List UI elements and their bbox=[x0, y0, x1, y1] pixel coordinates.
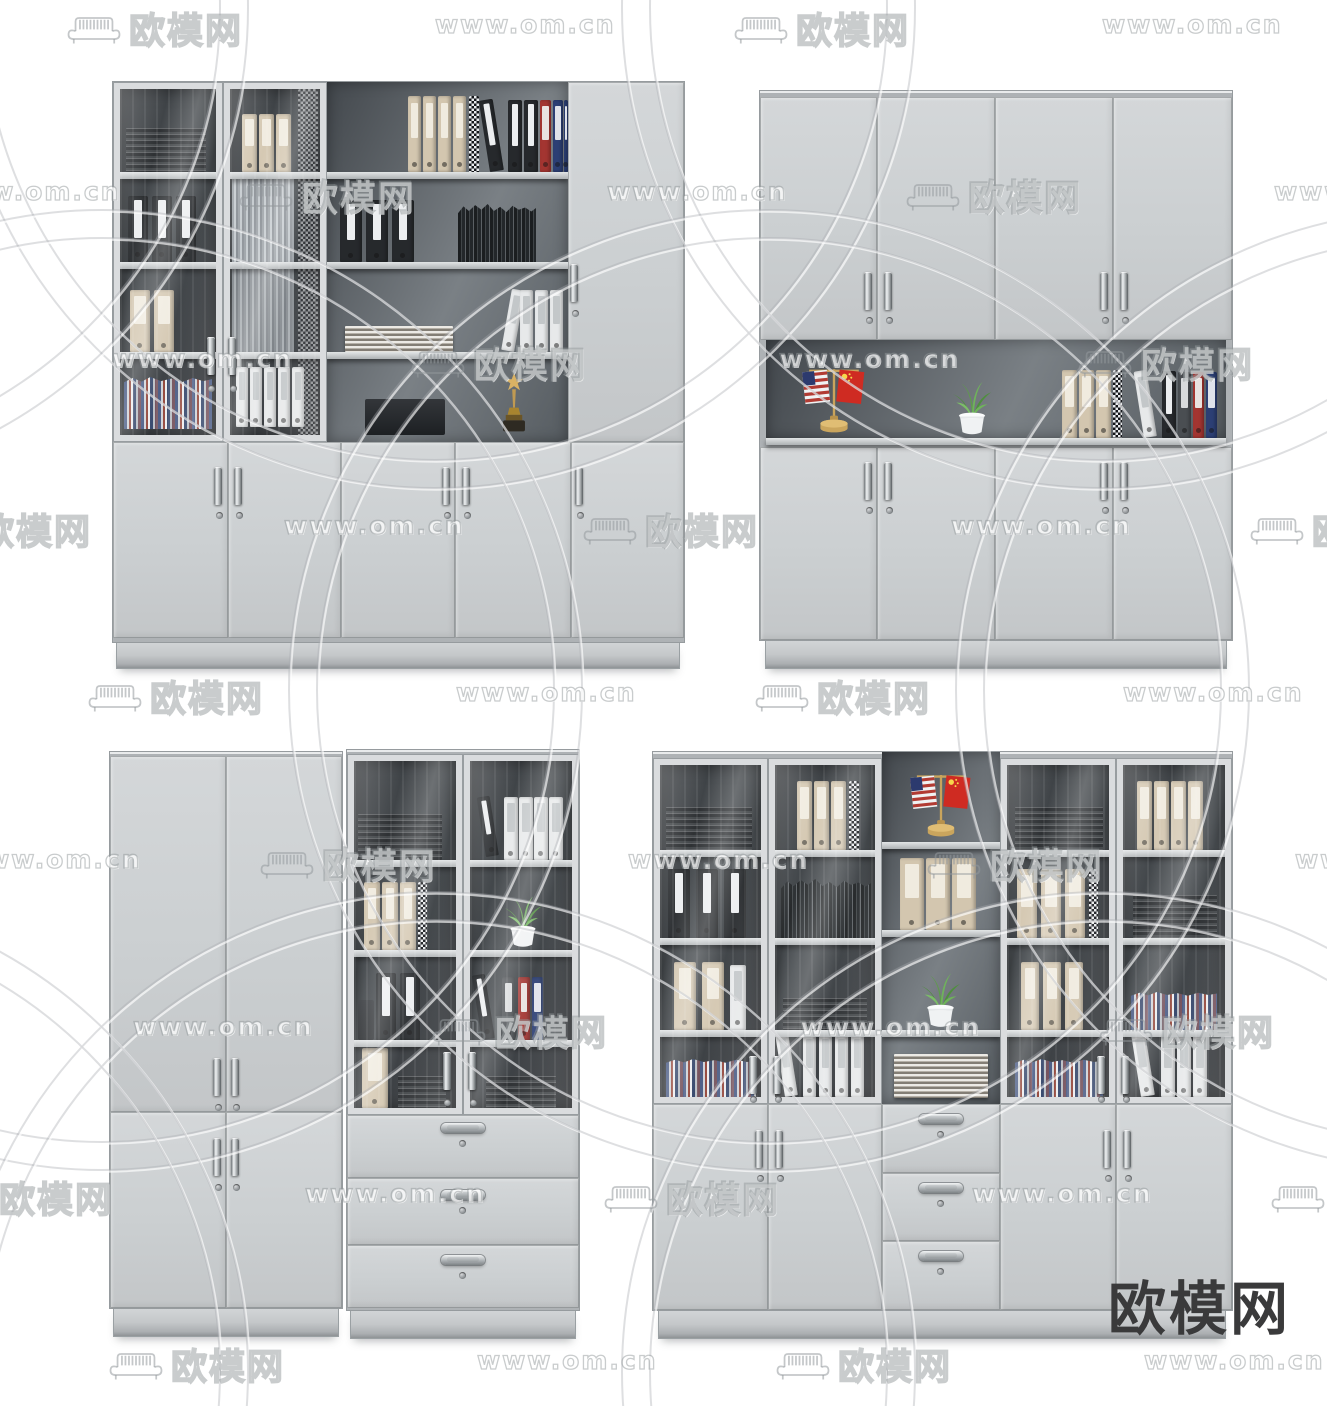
potted-plant bbox=[498, 891, 548, 950]
binder bbox=[438, 96, 451, 172]
site-logo: 欧模网 bbox=[1108, 1262, 1291, 1346]
door-handle bbox=[468, 1052, 476, 1090]
keyhole bbox=[1122, 507, 1129, 514]
glass-pane bbox=[1123, 765, 1225, 1097]
glass-pane bbox=[1007, 765, 1109, 1097]
bd bbox=[120, 262, 216, 269]
drawer-handle bbox=[919, 1114, 963, 1124]
binder bbox=[423, 96, 436, 172]
binder bbox=[400, 973, 420, 1040]
binder bbox=[1154, 781, 1169, 850]
watermark-brand-text: 欧模网 bbox=[1312, 503, 1327, 555]
bd bbox=[775, 850, 875, 857]
door-handle bbox=[1100, 272, 1108, 310]
magazine-stack bbox=[894, 1054, 988, 1098]
door-handle bbox=[864, 272, 872, 310]
plinth bbox=[114, 1308, 338, 1336]
door-handle bbox=[775, 1130, 783, 1168]
magazine-stack bbox=[126, 128, 206, 172]
watermark-url-text: www.om.cn bbox=[1144, 1346, 1325, 1375]
door-handle bbox=[213, 1138, 221, 1176]
door-handle bbox=[443, 1052, 451, 1090]
keyhole bbox=[757, 1175, 764, 1182]
box-file bbox=[952, 858, 976, 930]
cabinet-door bbox=[995, 97, 1113, 340]
binder bbox=[851, 1033, 864, 1097]
use bbox=[953, 382, 991, 434]
binder bbox=[549, 797, 563, 860]
watermark-url-text: www.om.cn bbox=[1123, 678, 1304, 707]
binder bbox=[1193, 1033, 1207, 1097]
cabinet-door bbox=[341, 442, 455, 638]
binder bbox=[1177, 1033, 1191, 1097]
door-handle bbox=[1097, 1056, 1105, 1094]
watermark-brand-text: 欧模网 bbox=[0, 503, 92, 555]
keyhole bbox=[230, 385, 237, 392]
drawer-handle bbox=[919, 1251, 963, 1261]
binder bbox=[176, 196, 196, 262]
patterned-book bbox=[469, 96, 479, 172]
watermark-brand: 欧模网 bbox=[753, 670, 931, 722]
watermark-brand: 欧模网 bbox=[0, 1171, 113, 1223]
binder bbox=[532, 977, 543, 1040]
watermark-url: www.om.cn bbox=[1295, 845, 1327, 874]
use bbox=[503, 373, 525, 432]
binder bbox=[674, 962, 696, 1030]
binder bbox=[696, 869, 718, 938]
book-spines bbox=[124, 377, 212, 429]
magazine-stack bbox=[345, 326, 453, 352]
glass-door bbox=[463, 754, 579, 1115]
binder bbox=[524, 100, 538, 172]
watermark-brand: 欧模网 bbox=[86, 670, 264, 722]
sofa-icon bbox=[65, 10, 123, 47]
keyhole bbox=[886, 507, 893, 514]
cabinet-door bbox=[228, 442, 341, 638]
bd bbox=[327, 262, 568, 269]
binder bbox=[508, 100, 522, 172]
keyhole bbox=[215, 1184, 222, 1191]
potted-plant bbox=[946, 376, 998, 438]
glass-door bbox=[1000, 758, 1116, 1104]
binder bbox=[550, 290, 563, 352]
door-handle bbox=[1123, 1130, 1131, 1168]
magazine-stack bbox=[783, 998, 867, 1030]
binder bbox=[278, 367, 290, 427]
binder bbox=[1065, 962, 1083, 1030]
binder bbox=[504, 797, 518, 860]
binder bbox=[564, 100, 568, 172]
desk-flags bbox=[906, 764, 976, 842]
cabinet-door bbox=[1113, 97, 1232, 340]
watermark-brand: 欧模网 bbox=[774, 1338, 952, 1390]
cabinet-bottom-right bbox=[653, 752, 1232, 1310]
cabinet-door bbox=[113, 442, 228, 638]
door-handle bbox=[1120, 462, 1128, 500]
bd bbox=[775, 1030, 875, 1037]
binder bbox=[366, 200, 388, 262]
bd bbox=[120, 352, 216, 359]
binder bbox=[519, 797, 533, 860]
door-handle bbox=[231, 1138, 239, 1176]
keyhole bbox=[937, 1131, 944, 1138]
box-file bbox=[926, 858, 950, 930]
watermark-brand-text: 欧模网 bbox=[129, 2, 243, 54]
watermark-url: www.om.cn bbox=[456, 678, 637, 707]
watermark-brand-text: 欧模网 bbox=[171, 1338, 285, 1390]
door-handle bbox=[1103, 1130, 1111, 1168]
binder bbox=[276, 114, 291, 172]
use bbox=[910, 775, 970, 836]
plinth bbox=[766, 640, 1226, 668]
sofa-icon bbox=[774, 1346, 832, 1383]
door-handle bbox=[1121, 1056, 1129, 1094]
binder bbox=[1206, 372, 1217, 438]
bd bbox=[660, 850, 761, 857]
keyhole bbox=[866, 507, 873, 514]
open-shelves bbox=[327, 82, 568, 442]
binder bbox=[803, 1033, 816, 1097]
keyhole bbox=[1102, 507, 1109, 514]
book-spines bbox=[1015, 1059, 1103, 1097]
binder bbox=[702, 962, 724, 1030]
watermark-brand: 欧模网 bbox=[1269, 1171, 1327, 1223]
door-handle bbox=[773, 1056, 781, 1094]
cabinet-bottom-left-bookcase bbox=[347, 750, 579, 1310]
sofa-icon bbox=[107, 1346, 165, 1383]
use bbox=[921, 973, 960, 1026]
keyhole bbox=[459, 1140, 466, 1147]
binder bbox=[1131, 1032, 1155, 1097]
keyhole bbox=[233, 1184, 240, 1191]
watermark-brand-text: 欧模网 bbox=[817, 670, 931, 722]
bd bbox=[230, 172, 320, 179]
door-handle bbox=[214, 467, 222, 505]
binder bbox=[819, 1033, 832, 1097]
binder bbox=[382, 882, 398, 950]
binder bbox=[250, 367, 262, 427]
keyhole bbox=[1105, 1175, 1112, 1182]
glass-pane bbox=[120, 89, 216, 435]
cabinet-door bbox=[226, 756, 342, 1112]
bd bbox=[354, 950, 456, 957]
binder bbox=[259, 114, 274, 172]
dark-box bbox=[358, 1000, 374, 1040]
binder bbox=[814, 781, 829, 850]
binder bbox=[479, 99, 504, 172]
bd bbox=[1123, 938, 1225, 945]
cabinet-top-left bbox=[113, 82, 684, 642]
door-handle bbox=[207, 337, 215, 375]
binder bbox=[1161, 1033, 1175, 1097]
box-file bbox=[362, 1048, 388, 1108]
watermark-brand: 欧模网 bbox=[0, 503, 92, 555]
glass-pane bbox=[354, 761, 456, 1108]
watermark-brand-text: 欧模网 bbox=[796, 2, 910, 54]
watermark-url-text: www.om.cn bbox=[477, 1346, 658, 1375]
bd bbox=[1007, 1030, 1109, 1037]
binder bbox=[453, 96, 466, 172]
use bbox=[69, 17, 120, 42]
binder bbox=[518, 977, 530, 1040]
desk-flags bbox=[798, 358, 870, 438]
watermark-url: www.om.cn bbox=[1123, 678, 1304, 707]
keyhole bbox=[750, 1096, 757, 1103]
binder bbox=[1134, 370, 1157, 438]
door-handle bbox=[570, 264, 578, 302]
glass-door bbox=[347, 754, 463, 1115]
glass-pane bbox=[470, 761, 572, 1108]
binder bbox=[1017, 869, 1037, 938]
watermark-brand-text: 欧模网 bbox=[838, 1338, 952, 1390]
binder bbox=[797, 781, 812, 850]
use bbox=[111, 1353, 162, 1378]
binder bbox=[376, 973, 396, 1040]
binder bbox=[534, 797, 548, 860]
door-handle bbox=[884, 272, 892, 310]
binder bbox=[1171, 781, 1186, 850]
binder bbox=[520, 290, 533, 352]
magazine-stack bbox=[358, 814, 442, 860]
cabinet-door bbox=[110, 756, 226, 1112]
binder bbox=[535, 290, 548, 352]
watermark-brand: 欧模网 bbox=[107, 1338, 285, 1390]
watermark-brand: 欧模网 bbox=[732, 2, 910, 54]
cabinet-door bbox=[877, 97, 995, 340]
bd bbox=[882, 1030, 1000, 1037]
binder bbox=[152, 196, 172, 262]
bd bbox=[470, 1040, 572, 1047]
binder bbox=[1162, 371, 1176, 438]
cabinet-door bbox=[653, 1104, 768, 1310]
use bbox=[778, 1353, 829, 1378]
keyhole bbox=[216, 512, 223, 519]
magazine-stack bbox=[666, 807, 752, 850]
binder bbox=[1043, 962, 1061, 1030]
cabinet-door bbox=[110, 1112, 226, 1308]
cabinet-door bbox=[571, 442, 684, 638]
magazine-stack bbox=[398, 1076, 446, 1108]
watermark-url-text: www.om.cn bbox=[1295, 845, 1327, 874]
binder bbox=[1062, 370, 1077, 438]
door-handle bbox=[749, 1056, 757, 1094]
sofa-icon bbox=[86, 678, 144, 715]
plinth bbox=[117, 642, 679, 668]
bd bbox=[230, 262, 320, 269]
bd bbox=[1123, 1030, 1225, 1037]
use bbox=[606, 1186, 657, 1211]
door-handle bbox=[442, 467, 450, 505]
display-shelf bbox=[766, 340, 1226, 438]
drawer-handle bbox=[919, 1183, 963, 1193]
use bbox=[757, 685, 808, 710]
bd bbox=[470, 950, 572, 957]
binder bbox=[540, 100, 551, 172]
keyhole bbox=[470, 1099, 477, 1106]
keyhole bbox=[577, 512, 584, 519]
glass-door bbox=[1116, 758, 1232, 1104]
cabinet-door bbox=[995, 447, 1113, 640]
magazine-stack bbox=[1015, 807, 1103, 850]
keyhole bbox=[886, 317, 893, 324]
magazine-stack bbox=[1133, 895, 1217, 938]
binder bbox=[730, 965, 746, 1030]
watermark-brand-text: 欧模网 bbox=[0, 1171, 113, 1223]
binder bbox=[392, 200, 414, 262]
keyhole bbox=[208, 385, 215, 392]
binder bbox=[154, 290, 174, 352]
box-file bbox=[900, 858, 924, 930]
binder bbox=[831, 781, 846, 850]
book-spines bbox=[1131, 992, 1217, 1030]
binder bbox=[1137, 781, 1152, 850]
bd bbox=[775, 938, 875, 945]
watermark-url: www.om.cn bbox=[435, 10, 616, 39]
keyhole bbox=[1102, 317, 1109, 324]
keyhole bbox=[866, 317, 873, 324]
keyhole bbox=[1098, 1096, 1105, 1103]
glass-pane bbox=[230, 89, 320, 435]
bd bbox=[1007, 938, 1109, 945]
keyhole bbox=[572, 310, 579, 317]
cabinet-door bbox=[455, 442, 571, 638]
binder bbox=[1021, 962, 1039, 1030]
keyhole bbox=[1122, 317, 1129, 324]
binder bbox=[1079, 370, 1094, 438]
watermark-brand-text: 欧模网 bbox=[150, 670, 264, 722]
cabinet-top-right bbox=[760, 91, 1232, 640]
binder bbox=[292, 367, 304, 427]
cabinet-door bbox=[760, 447, 877, 640]
glass-door bbox=[768, 758, 882, 1104]
door-handle bbox=[234, 467, 242, 505]
keyhole bbox=[777, 1175, 784, 1182]
binder bbox=[1193, 372, 1204, 438]
paper-stack bbox=[232, 179, 294, 262]
bd bbox=[327, 352, 568, 359]
door-handle bbox=[213, 1058, 221, 1096]
bd bbox=[1123, 850, 1225, 857]
bd bbox=[660, 938, 761, 945]
glass-door bbox=[653, 758, 768, 1104]
binder bbox=[1041, 869, 1061, 938]
binder bbox=[364, 882, 380, 950]
bd bbox=[660, 1030, 761, 1037]
patterned-book bbox=[418, 882, 427, 950]
cabinet-door bbox=[568, 82, 684, 442]
bd bbox=[327, 172, 568, 179]
bd bbox=[882, 930, 1000, 937]
binder bbox=[264, 367, 276, 427]
binder bbox=[668, 869, 690, 938]
drawer-handle bbox=[441, 1255, 485, 1265]
binder bbox=[1188, 781, 1203, 850]
door-handle bbox=[462, 467, 470, 505]
keyhole bbox=[233, 1104, 240, 1111]
center-column bbox=[882, 752, 1000, 1310]
door-handle bbox=[755, 1130, 763, 1168]
watermark-url-text: www.om.cn bbox=[1274, 177, 1327, 206]
binder bbox=[400, 882, 416, 950]
binder bbox=[835, 1033, 848, 1097]
trophy bbox=[500, 371, 528, 435]
use bbox=[1273, 1186, 1324, 1211]
sofa-icon bbox=[1248, 511, 1306, 548]
watermark-url-text: www.om.cn bbox=[456, 678, 637, 707]
binder bbox=[242, 114, 257, 172]
bd bbox=[882, 842, 1000, 849]
plinth bbox=[351, 1310, 575, 1338]
mesh-screen bbox=[1089, 869, 1098, 938]
keyhole bbox=[444, 512, 451, 519]
keyhole bbox=[444, 1099, 451, 1106]
binder bbox=[128, 196, 148, 262]
bd bbox=[470, 860, 572, 867]
use bbox=[90, 685, 141, 710]
watermark-url-text: www.om.cn bbox=[0, 177, 121, 206]
glass-pane bbox=[660, 765, 761, 1097]
shelf-board bbox=[766, 438, 1226, 445]
bd bbox=[1007, 850, 1109, 857]
binder bbox=[502, 977, 515, 1040]
door-handle bbox=[1100, 462, 1108, 500]
cabinet-door bbox=[760, 97, 877, 340]
door-handle bbox=[884, 462, 892, 500]
paper-stack bbox=[232, 269, 294, 352]
binder bbox=[724, 869, 746, 938]
door-handle bbox=[228, 337, 236, 375]
watermark-url: www.om.cn bbox=[1144, 1346, 1325, 1375]
use bbox=[736, 17, 787, 42]
book-row bbox=[781, 879, 871, 938]
magazine-stack bbox=[486, 1076, 556, 1108]
glass-door bbox=[113, 82, 223, 442]
sofa-icon bbox=[732, 10, 790, 47]
keyhole bbox=[775, 1096, 782, 1103]
sofa-icon bbox=[1269, 1179, 1327, 1216]
watermark-url: www.om.cn bbox=[1102, 10, 1283, 39]
mesh-screen bbox=[849, 781, 859, 850]
sofa-icon bbox=[602, 1179, 660, 1216]
watermark-brand: 欧模网 bbox=[1248, 503, 1327, 555]
watermark-url-text: www.om.cn bbox=[435, 10, 616, 39]
binder bbox=[1096, 370, 1111, 438]
keyhole bbox=[1125, 1175, 1132, 1182]
watermark-url-text: www.om.cn bbox=[1102, 10, 1283, 39]
keyhole bbox=[464, 512, 471, 519]
binder bbox=[236, 367, 248, 427]
drawer-handle bbox=[441, 1190, 485, 1200]
keyhole bbox=[937, 1268, 944, 1275]
door-handle bbox=[231, 1058, 239, 1096]
door-handle bbox=[575, 467, 583, 505]
glass-pane bbox=[775, 765, 875, 1097]
product-render-canvas: 欧模网www.om.cn欧模网www.om.cnwww.om.cn欧模网www.… bbox=[0, 0, 1327, 1406]
bd bbox=[354, 860, 456, 867]
watermark-url: www.om.cn bbox=[477, 1346, 658, 1375]
keyhole bbox=[1123, 1096, 1130, 1103]
cabinet-door bbox=[768, 1104, 882, 1310]
bd bbox=[230, 352, 320, 359]
keyhole bbox=[236, 512, 243, 519]
book-row bbox=[458, 204, 536, 262]
watermark-url: www.om.cn bbox=[1274, 177, 1327, 206]
door-handle bbox=[864, 462, 872, 500]
door-handle bbox=[1120, 272, 1128, 310]
binder bbox=[1178, 372, 1191, 438]
potted-plant bbox=[914, 968, 967, 1030]
book-spines bbox=[666, 1059, 756, 1097]
